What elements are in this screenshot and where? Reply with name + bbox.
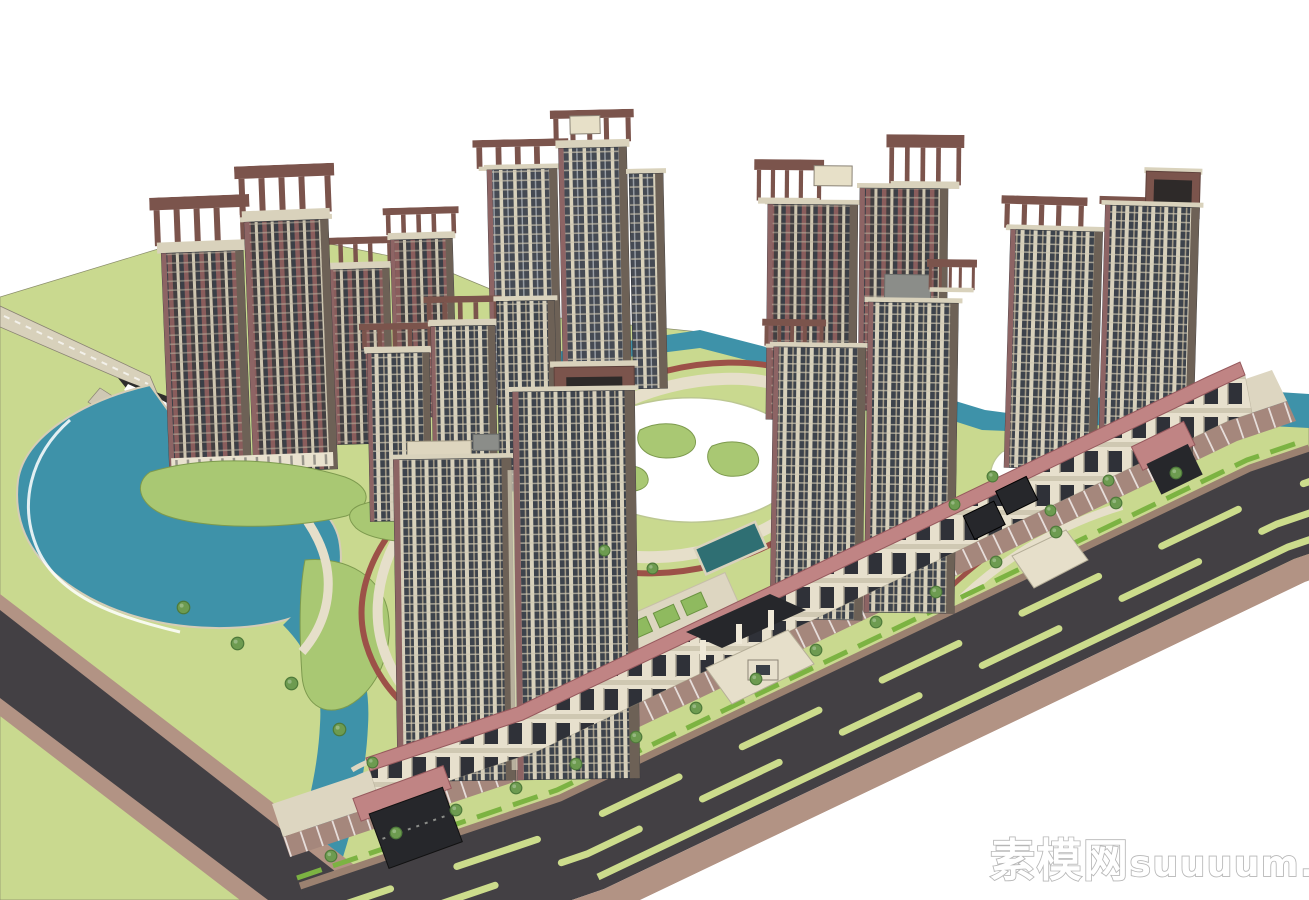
roof-box bbox=[884, 274, 930, 301]
garden-island bbox=[638, 424, 696, 458]
garden-island bbox=[708, 442, 759, 476]
roof-box bbox=[570, 116, 600, 135]
watermark-cn-text: 素模网 bbox=[990, 834, 1130, 887]
site-plan-render: 素模网suuuum.com bbox=[0, 0, 1309, 900]
roof-box bbox=[814, 166, 852, 186]
render-canvas: 素模网suuuum.com bbox=[0, 0, 1309, 900]
watermark-latin-text: suuuum.com bbox=[1130, 844, 1309, 885]
